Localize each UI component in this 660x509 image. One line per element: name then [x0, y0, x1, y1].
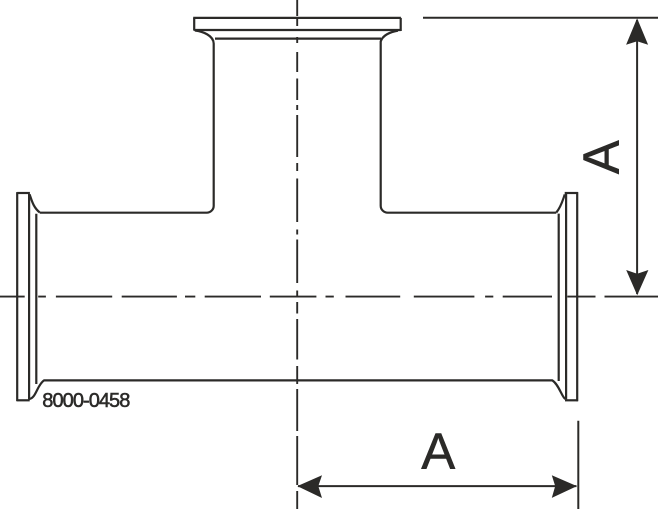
svg-text:A: A: [421, 423, 455, 480]
svg-text:A: A: [573, 140, 630, 174]
svg-text:8000-0458: 8000-0458: [42, 390, 130, 412]
